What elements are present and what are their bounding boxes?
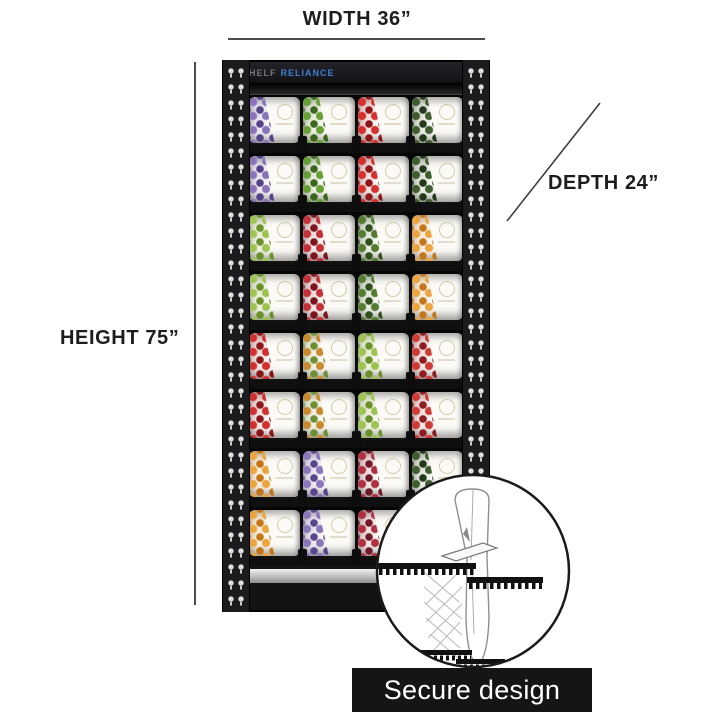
chives-artwork (303, 97, 330, 143)
can-strawberries (303, 274, 354, 320)
can-label-stamp (331, 340, 347, 356)
shelf-header: SHELF RELIANCE (222, 60, 490, 83)
width-dimension-label: WIDTH 36” (229, 8, 485, 31)
track-divider-tab (352, 490, 361, 506)
can-label-stamp (331, 458, 347, 474)
keyhole-slots-icon (226, 66, 246, 606)
apricots-artwork (249, 510, 276, 556)
can-label-stamp (331, 281, 347, 297)
track-divider-tab (406, 254, 415, 270)
peaches-artwork (412, 274, 439, 320)
strawberries-artwork (303, 215, 330, 261)
can-apricots (249, 510, 300, 556)
secure-design-caption-text: Secure design (384, 675, 561, 706)
cucumbers-artwork (358, 274, 385, 320)
can-label-stamp (385, 399, 401, 415)
track-divider-tab (352, 254, 361, 270)
can-blueberries (249, 97, 300, 143)
track-divider-tab (352, 372, 361, 388)
can-veggie-blend (303, 392, 354, 438)
spinach-artwork (412, 97, 439, 143)
blueberries-artwork (303, 510, 330, 556)
red-peppers-artwork (358, 156, 385, 202)
blueberries-artwork (249, 97, 276, 143)
strawberries-artwork (303, 274, 330, 320)
can-red-bell-peppers (249, 392, 300, 438)
can-label-stamp (385, 222, 401, 238)
brand-reliance: RELIANCE (281, 68, 335, 78)
can-label-stamp (331, 399, 347, 415)
chives-artwork (303, 156, 330, 202)
shelf-row (248, 389, 464, 448)
track-divider-tab (352, 549, 361, 565)
can-label-stamp (277, 222, 293, 238)
green-apples-artwork (249, 215, 276, 261)
track-divider-tab (406, 431, 415, 447)
can-green-apples (249, 215, 300, 261)
can-veggie-blend (303, 333, 354, 379)
can-label-stamp (385, 281, 401, 297)
strawberries-artwork (412, 333, 439, 379)
width-dimension-line (228, 38, 485, 40)
can-label-stamp (439, 222, 455, 238)
product-diagram: WIDTH 36” HEIGHT 75” DEPTH 24” SHELF REL… (0, 0, 720, 720)
spinach-artwork (412, 156, 439, 202)
track-divider-tab (352, 313, 361, 329)
can-red-peppers (358, 97, 409, 143)
shelf-row (248, 271, 464, 330)
can-blueberries (303, 510, 354, 556)
can-label-stamp (277, 163, 293, 179)
can-apricots (249, 451, 300, 497)
can-peaches (412, 215, 463, 261)
can-blueberries (249, 156, 300, 202)
track-divider-tab (298, 372, 307, 388)
secure-design-inset (374, 472, 572, 670)
red-bell-peppers-artwork (249, 392, 276, 438)
depth-dimension-label: DEPTH 24” (548, 172, 659, 195)
shelf-row (248, 153, 464, 212)
veggie-blend-artwork (303, 333, 330, 379)
shelf-post-left (222, 60, 250, 612)
track-detail-drawing (374, 472, 572, 670)
track-divider-tab (298, 549, 307, 565)
can-label-stamp (439, 340, 455, 356)
height-dimension-label: HEIGHT 75” (60, 327, 186, 350)
height-dimension-line (194, 62, 196, 605)
shelf-row (248, 330, 464, 389)
can-label-stamp (331, 517, 347, 533)
can-label-stamp (439, 399, 455, 415)
can-green-apples (249, 274, 300, 320)
track-divider-tab (298, 313, 307, 329)
can-strawberries (412, 333, 463, 379)
can-label-stamp (277, 399, 293, 415)
top-shelf-underside (222, 83, 490, 95)
blueberries-artwork (249, 156, 276, 202)
depth-dimension-line (500, 96, 608, 228)
track-divider-tab (406, 313, 415, 329)
apricots-artwork (249, 451, 276, 497)
track-divider-tab (352, 431, 361, 447)
peaches-artwork (412, 215, 439, 261)
can-label-stamp (439, 281, 455, 297)
track-divider-tab (352, 136, 361, 152)
can-blueberries (303, 451, 354, 497)
cucumbers-artwork (358, 215, 385, 261)
can-spinach (412, 156, 463, 202)
can-label-stamp (277, 104, 293, 120)
strawberries-artwork (412, 392, 439, 438)
can-label-stamp (277, 458, 293, 474)
track-divider-tab (352, 195, 361, 211)
can-label-stamp (277, 281, 293, 297)
can-strawberries (303, 215, 354, 261)
can-label-stamp (331, 222, 347, 238)
can-label-stamp (385, 104, 401, 120)
can-label-stamp (439, 104, 455, 120)
can-red-bell-peppers (249, 333, 300, 379)
track-divider-tab (406, 136, 415, 152)
can-cucumbers (358, 274, 409, 320)
can-label-stamp (277, 340, 293, 356)
veggie-blend-artwork (303, 392, 330, 438)
green-apples-artwork (249, 274, 276, 320)
can-label-stamp (385, 163, 401, 179)
track-divider-tab (406, 372, 415, 388)
shelf-row (248, 212, 464, 271)
can-label-stamp (331, 163, 347, 179)
red-peppers-artwork (358, 97, 385, 143)
can-label-stamp (331, 104, 347, 120)
track-divider-tab (298, 490, 307, 506)
blueberries-artwork (303, 451, 330, 497)
shelf-row (248, 94, 464, 153)
can-label-stamp (385, 340, 401, 356)
can-peaches (412, 274, 463, 320)
track-divider-tab (298, 431, 307, 447)
green-apples-artwork (358, 333, 385, 379)
can-green-apples (358, 333, 409, 379)
can-label-stamp (439, 163, 455, 179)
track-divider-tab (298, 136, 307, 152)
can-label-stamp (277, 517, 293, 533)
green-apples-artwork (358, 392, 385, 438)
secure-design-caption: Secure design (352, 668, 592, 712)
can-spinach (412, 97, 463, 143)
track-divider-tab (298, 254, 307, 270)
track-divider-tab (298, 195, 307, 211)
red-bell-peppers-artwork (249, 333, 276, 379)
can-strawberries (412, 392, 463, 438)
can-red-peppers (358, 156, 409, 202)
can-green-apples (358, 392, 409, 438)
can-chives (303, 97, 354, 143)
can-chives (303, 156, 354, 202)
track-divider-tab (406, 195, 415, 211)
can-cucumbers (358, 215, 409, 261)
